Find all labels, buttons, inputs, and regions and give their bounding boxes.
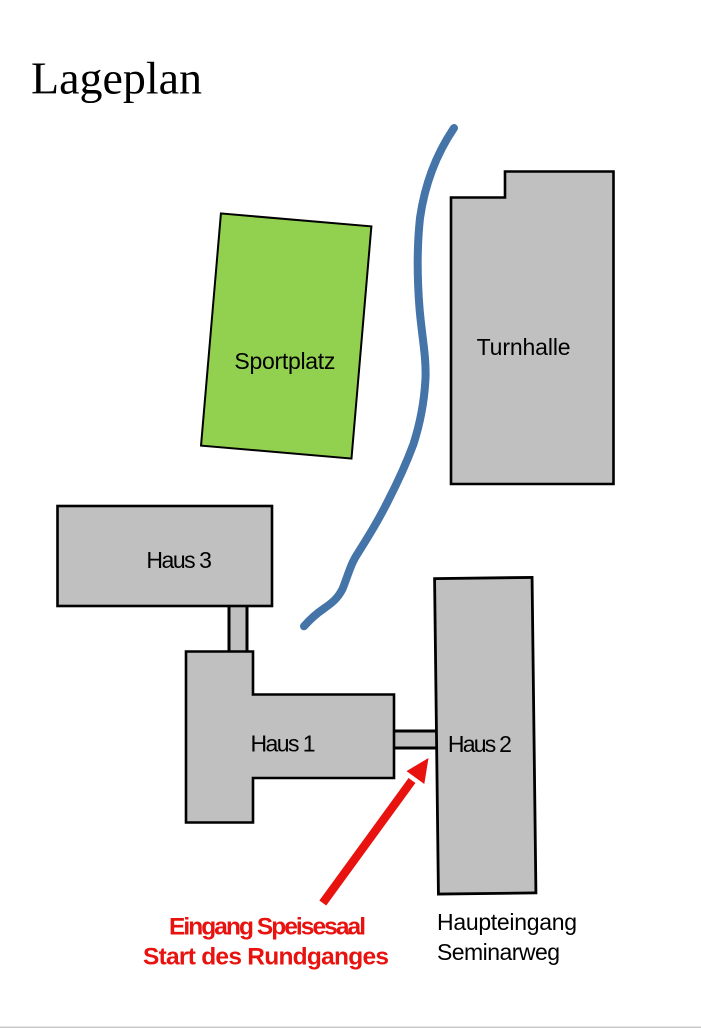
svg-text:Start des Rundganges: Start des Rundganges <box>143 944 389 971</box>
svg-text:Seminarweg: Seminarweg <box>437 939 560 965</box>
svg-text:Sportplatz: Sportplatz <box>234 348 335 374</box>
svg-text:Haus 1: Haus 1 <box>251 730 316 756</box>
svg-text:Haupteingang: Haupteingang <box>437 909 577 935</box>
svg-text:Haus 3: Haus 3 <box>146 547 212 573</box>
svg-text:Turnhalle: Turnhalle <box>477 334 571 360</box>
svg-text:Haus 2: Haus 2 <box>448 731 512 757</box>
svg-text:Eingang Speisesaal: Eingang Speisesaal <box>169 914 366 941</box>
svg-text:Lageplan: Lageplan <box>31 53 202 104</box>
